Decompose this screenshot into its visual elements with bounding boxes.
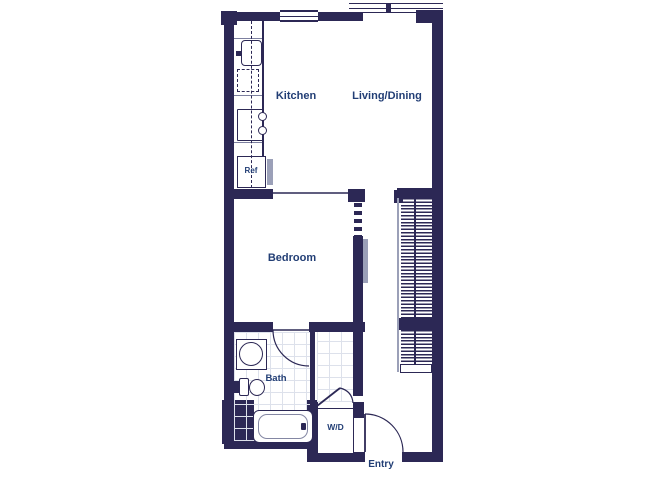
wd-door-arc	[340, 388, 353, 403]
door-swing-overlay	[0, 0, 670, 480]
living-dining-label: Living/Dining	[337, 90, 437, 102]
wd-door-leaf	[317, 388, 340, 406]
entry-label: Entry	[353, 459, 409, 470]
entry-door-arc	[365, 414, 403, 452]
bath-door-arc	[273, 330, 309, 366]
bedroom-label: Bedroom	[252, 252, 332, 264]
bath-label: Bath	[258, 374, 294, 384]
kitchen-label: Kitchen	[256, 90, 336, 102]
floor-plan: Ref W/D Kitchen Living/Dining Bedroom Ba…	[0, 0, 670, 480]
